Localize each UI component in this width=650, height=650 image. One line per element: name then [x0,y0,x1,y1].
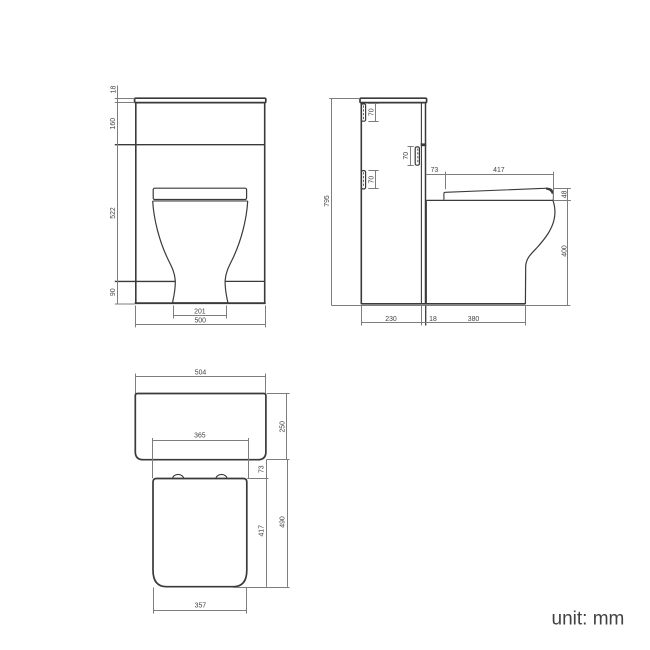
svg-text:18: 18 [111,86,118,94]
svg-text:70: 70 [369,108,376,116]
svg-text:504: 504 [195,370,207,377]
svg-text:795: 795 [324,195,331,207]
svg-text:73: 73 [258,465,265,473]
svg-text:230: 230 [385,316,397,323]
svg-text:250: 250 [280,421,287,433]
svg-text:417: 417 [259,525,266,537]
svg-text:500: 500 [194,318,206,325]
svg-text:90: 90 [110,288,117,296]
svg-text:380: 380 [468,316,480,323]
svg-text:48: 48 [562,190,569,198]
svg-text:357: 357 [195,602,207,609]
svg-text:70: 70 [403,152,410,160]
svg-text:73: 73 [431,167,439,174]
svg-text:70: 70 [369,176,376,184]
svg-text:417: 417 [493,167,505,174]
svg-text:365: 365 [194,433,206,440]
svg-text:490: 490 [280,516,287,528]
svg-text:18: 18 [429,316,437,323]
svg-text:522: 522 [110,207,117,219]
svg-text:160: 160 [110,118,117,130]
svg-text:400: 400 [561,245,568,257]
svg-text:unit: mm: unit: mm [552,609,625,630]
svg-text:201: 201 [194,309,206,316]
